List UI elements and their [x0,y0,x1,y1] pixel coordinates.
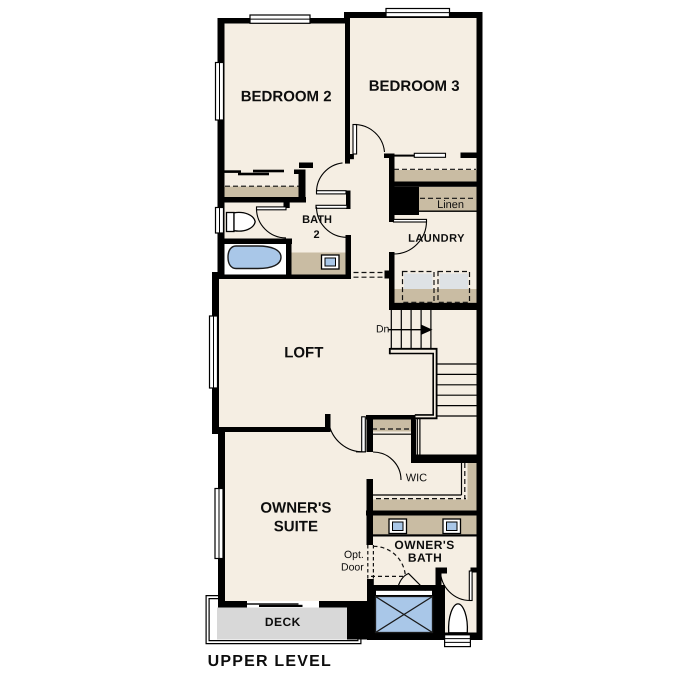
svg-text:BATH: BATH [302,214,332,226]
svg-text:LAUNDRY: LAUNDRY [408,233,465,245]
svg-text:2: 2 [313,229,319,241]
svg-text:DECK: DECK [265,615,301,629]
svg-text:Door: Door [341,562,364,574]
svg-text:WIC: WIC [406,472,427,484]
svg-text:Linen: Linen [437,199,464,211]
svg-text:Opt.: Opt. [344,549,364,561]
svg-text:OWNER'S: OWNER'S [260,500,331,517]
svg-text:Dn: Dn [376,323,390,335]
svg-text:BEDROOM 2: BEDROOM 2 [241,88,332,105]
svg-text:SUITE: SUITE [274,518,318,535]
svg-text:BEDROOM 3: BEDROOM 3 [369,78,460,95]
svg-text:BATH: BATH [408,551,442,565]
svg-text:UPPER LEVEL: UPPER LEVEL [208,653,332,670]
svg-text:LOFT: LOFT [284,344,323,361]
